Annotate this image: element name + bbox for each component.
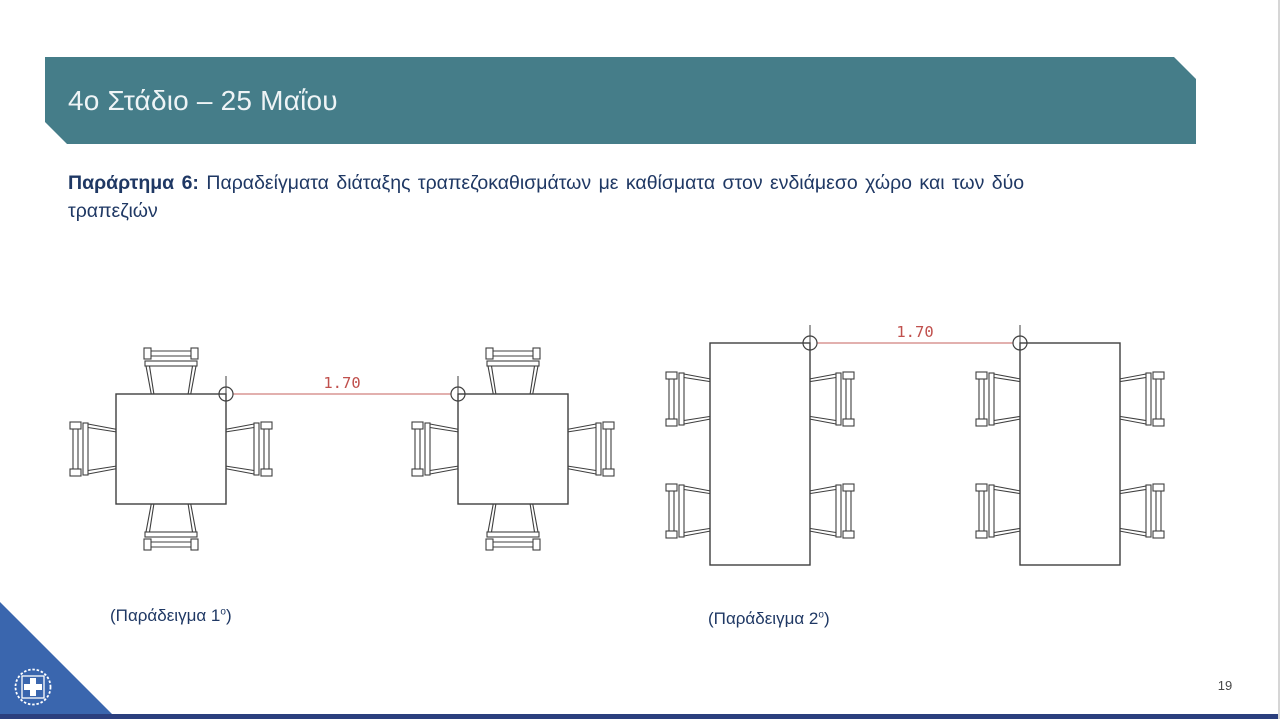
chair [564, 422, 614, 476]
dimension-value: 1.70 [896, 323, 933, 341]
chair [1114, 484, 1164, 538]
footer-bar [0, 714, 1280, 719]
square-table [458, 394, 568, 504]
chair [666, 372, 716, 426]
caption-close: ) [226, 606, 232, 625]
chair [1114, 372, 1164, 426]
page-number: 19 [1210, 678, 1240, 693]
chair [144, 348, 198, 398]
chair [486, 348, 540, 398]
presentation-slide: 4ο Στάδιο – 25 Μαΐου Παράρτημα 6: Παραδε… [0, 0, 1280, 719]
caption-text: (Παράδειγμα 2 [708, 609, 818, 628]
caption-close: ) [824, 609, 830, 628]
chair [486, 500, 540, 550]
example2-diagram: 1.70 [666, 323, 1164, 565]
square-table [116, 394, 226, 504]
dimension-value: 1.70 [323, 374, 360, 392]
chair [412, 422, 462, 476]
chair [144, 500, 198, 550]
example2-dimension: 1.70 [803, 323, 1027, 361]
chair [666, 484, 716, 538]
chair [976, 484, 1026, 538]
chair [804, 484, 854, 538]
example1-dimension: 1.70 [219, 374, 465, 412]
chair [70, 422, 120, 476]
example1-diagram: 1.70 [70, 348, 614, 550]
example2-caption: (Παράδειγμα 2ο) [708, 609, 830, 629]
rectangular-table [710, 343, 810, 565]
chair [976, 372, 1026, 426]
greek-government-logo [0, 598, 130, 714]
rectangular-table [1020, 343, 1120, 565]
chair [804, 372, 854, 426]
chair [222, 422, 272, 476]
logo-triangle [0, 602, 112, 714]
